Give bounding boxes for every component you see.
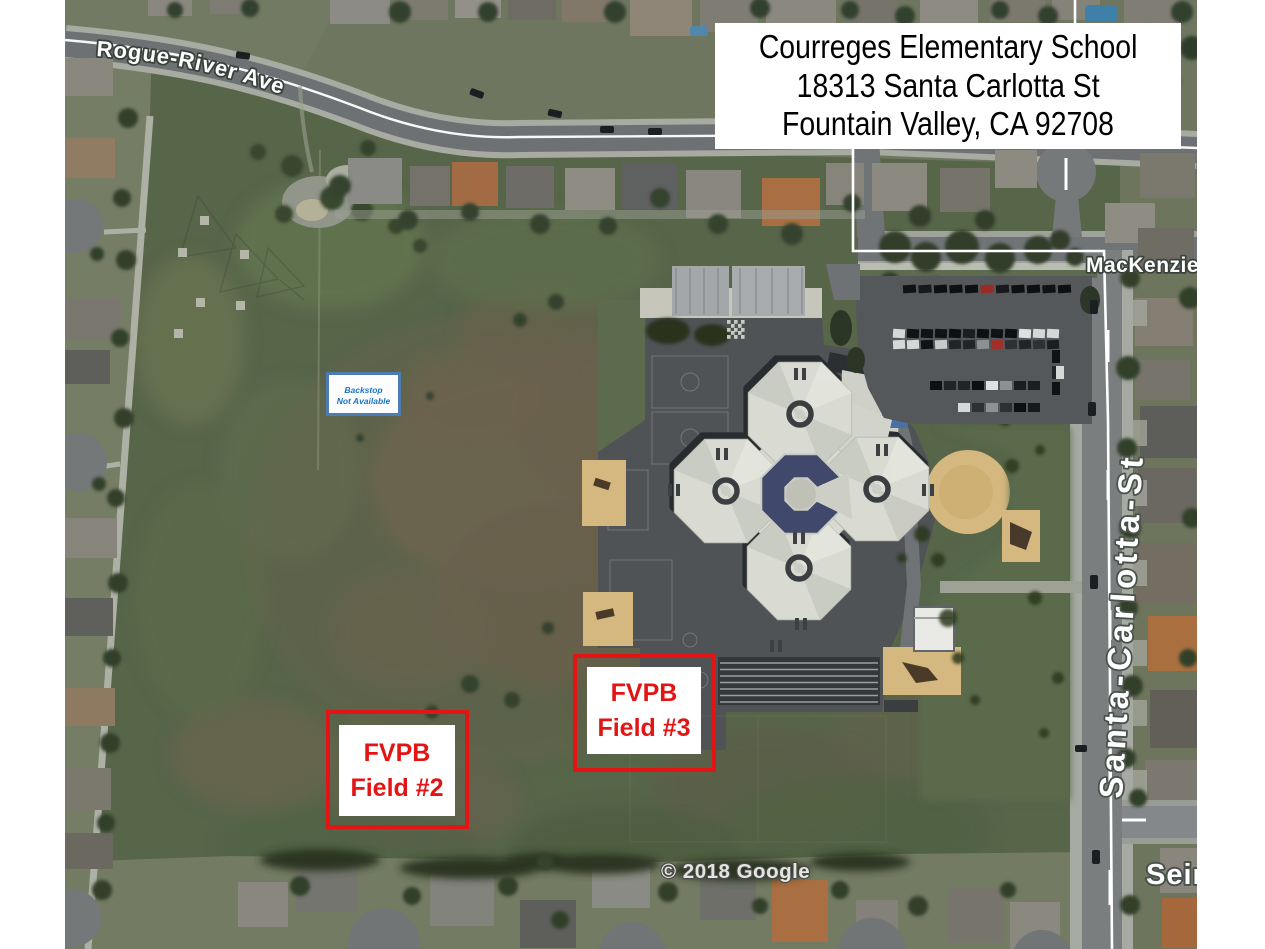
svg-text:© 2018 Google: © 2018 Google (661, 860, 810, 883)
svg-text:MacKenzie: MacKenzie (1086, 254, 1199, 277)
